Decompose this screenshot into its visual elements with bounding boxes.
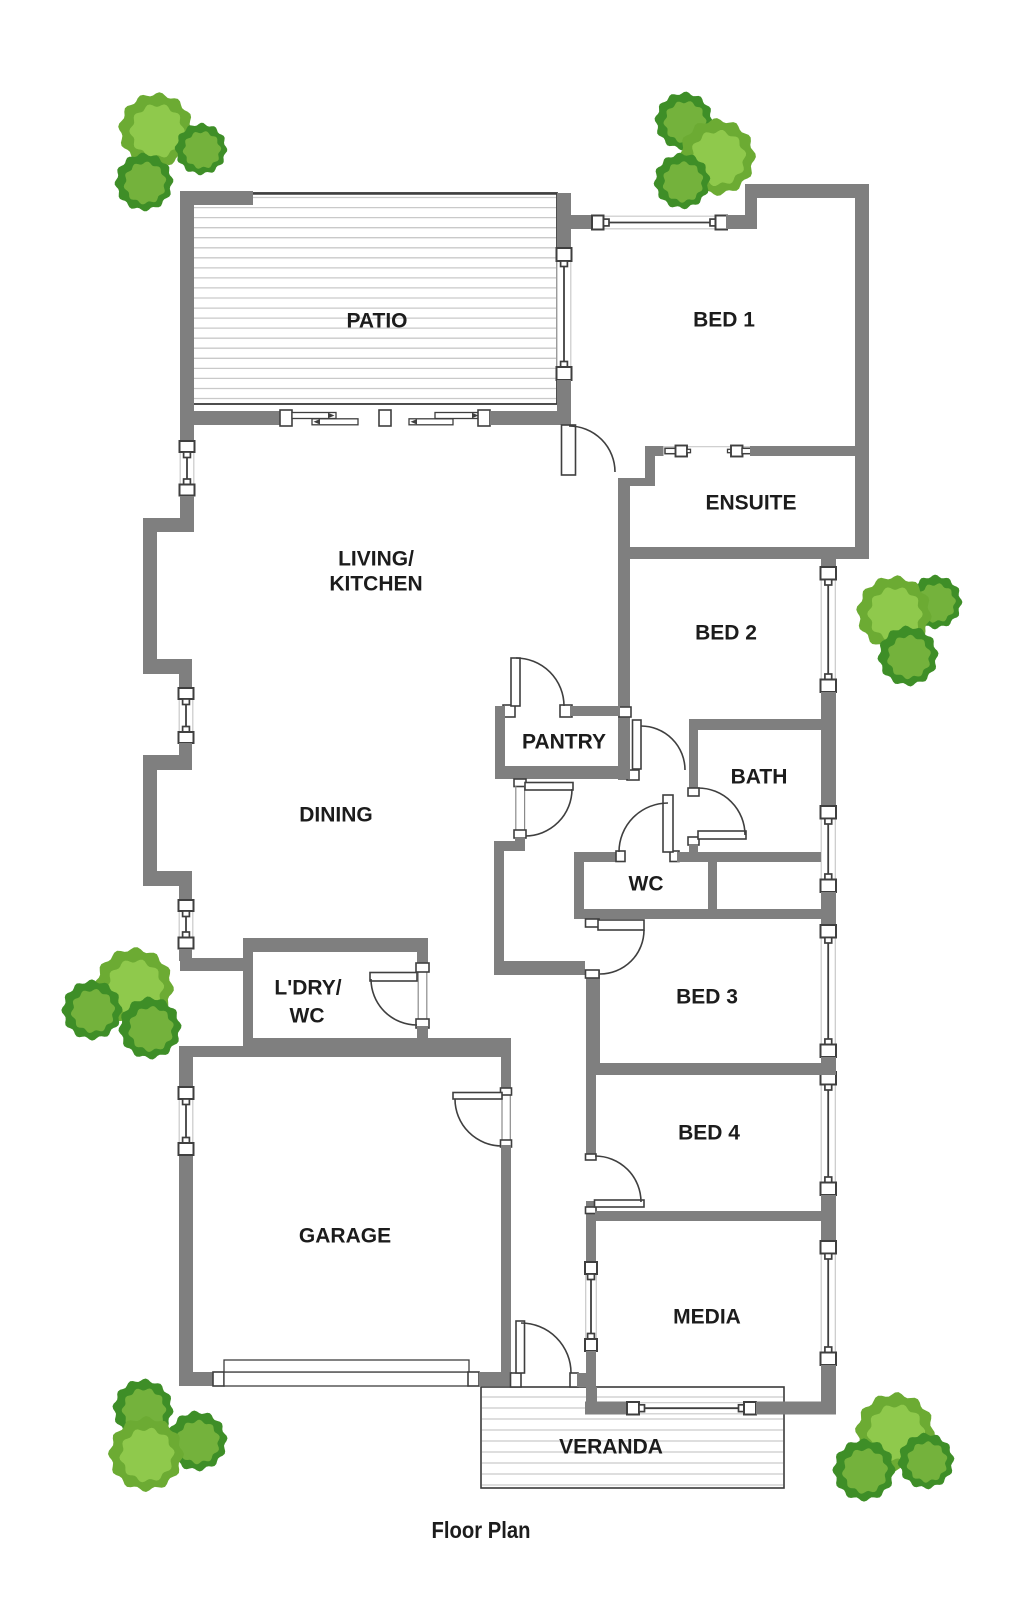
svg-text:PANTRY: PANTRY [522,731,606,754]
svg-text:MEDIA: MEDIA [673,1306,741,1329]
svg-text:GARAGE: GARAGE [299,1225,391,1248]
svg-text:KITCHEN: KITCHEN [329,573,422,596]
svg-text:PATIO: PATIO [346,310,407,333]
svg-text:Floor Plan: Floor Plan [432,1517,531,1543]
svg-text:BED 4: BED 4 [678,1122,740,1145]
svg-text:BED 1: BED 1 [693,309,755,332]
svg-text:DINING: DINING [299,804,373,827]
svg-text:LIVING/: LIVING/ [338,548,414,571]
svg-text:ENSUITE: ENSUITE [705,492,796,515]
svg-text:L'DRY/: L'DRY/ [274,977,341,1000]
svg-text:BED 3: BED 3 [676,986,738,1009]
svg-text:BATH: BATH [731,766,788,789]
svg-text:WC: WC [629,873,664,896]
svg-text:VERANDA: VERANDA [559,1436,663,1459]
svg-text:WC: WC [290,1005,325,1028]
svg-text:BED 2: BED 2 [695,622,757,645]
